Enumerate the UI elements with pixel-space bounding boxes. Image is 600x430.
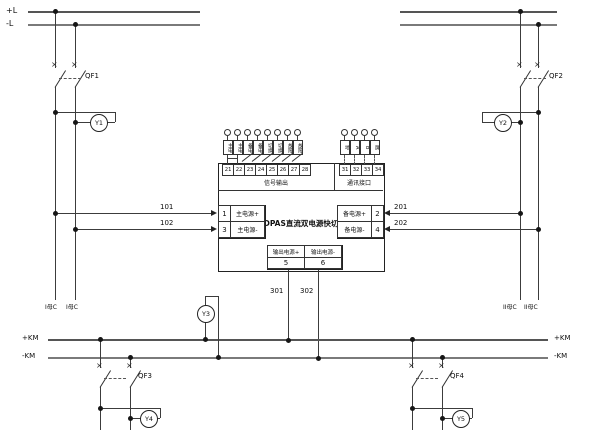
wire <box>55 112 115 113</box>
breaker-label-qf2: QF2 <box>549 72 563 81</box>
bus-line-pos-right <box>400 11 557 13</box>
breaker-contact-icon: × <box>534 61 541 69</box>
terminal-number: 34 <box>373 164 384 176</box>
module-title: DPAS直流双电源快切 <box>256 218 346 229</box>
terminal-label: 主电源+ <box>230 205 265 222</box>
terminal-circle <box>341 129 348 136</box>
junction-dot <box>73 120 78 125</box>
breaker-contact-icon: × <box>126 362 133 370</box>
terminal-circle <box>254 129 261 136</box>
signal-terminal-row: 21 22 23 24 25 26 27 28 <box>222 164 311 176</box>
indicator-y2-label: Y2 <box>499 119 507 127</box>
wire-label-302: 302 <box>300 287 313 296</box>
wire-label-102: 102 <box>160 219 173 228</box>
bus-line-neg-right <box>400 24 557 26</box>
wire <box>520 87 521 300</box>
bus-label-neg-km-right: -KM <box>554 352 567 361</box>
breaker-label-qf3: QF3 <box>138 372 152 381</box>
indicator-y3: Y3 <box>197 305 215 323</box>
junction-dot <box>536 110 541 115</box>
comm-section-label: 通讯接口 <box>336 178 382 187</box>
junction-dot <box>536 227 541 232</box>
terminal-circle <box>274 129 281 136</box>
junction-dot <box>53 110 58 115</box>
wire <box>160 408 161 418</box>
bus-line-neg-left <box>28 24 200 26</box>
wire <box>100 408 160 409</box>
indicator-y3-label: Y3 <box>202 310 210 318</box>
breaker-pole <box>100 370 111 387</box>
terminal-number: 22 <box>234 164 245 176</box>
module-strip-divider <box>218 190 383 191</box>
wire-301 <box>288 268 289 340</box>
wire-label-201: 201 <box>394 203 407 212</box>
wire <box>205 296 218 297</box>
breaker-link <box>416 378 438 379</box>
feeder-label-left-a: I母C <box>45 303 57 312</box>
wire <box>482 112 538 113</box>
wire <box>538 87 539 300</box>
breaker-label-qf1: QF1 <box>85 72 99 81</box>
indicator-y1-label: Y1 <box>95 119 103 127</box>
terminal-number: 28 <box>300 164 311 176</box>
terminal-label: 主电源- <box>230 221 265 238</box>
indicator-y5-label: Y5 <box>457 415 465 423</box>
terminal-number: 24 <box>256 164 267 176</box>
terminal-circle <box>244 129 251 136</box>
terminal-number: 32 <box>351 164 362 176</box>
junction-dot <box>53 211 58 216</box>
main-input-terminal-block: 1 主电源+ 3 主电源- <box>218 205 266 239</box>
wire-102 <box>75 229 211 230</box>
bus-label-neg-km-left: -KM <box>22 352 35 361</box>
comm-tag: B <box>360 140 370 155</box>
breaker-pole <box>55 70 66 87</box>
breaker-contact-icon: × <box>438 362 445 370</box>
junction-dot <box>410 406 415 411</box>
module-section-divider <box>334 163 335 190</box>
indicator-y4: Y4 <box>140 410 158 428</box>
wire <box>55 87 56 300</box>
junction-dot <box>410 337 415 342</box>
terminal-label: 备电源+ <box>337 205 372 222</box>
wire-302 <box>318 268 319 358</box>
feeder-label-right-a: II母C <box>503 303 517 312</box>
wire <box>482 112 483 122</box>
junction-dot <box>216 355 221 360</box>
terminal-number: 26 <box>278 164 289 176</box>
comm-tag: 屏 <box>370 140 380 155</box>
breaker-pole <box>538 70 549 87</box>
junction-dot <box>440 355 445 360</box>
breaker-pole <box>520 70 531 87</box>
wire <box>472 408 473 418</box>
indicator-y5: Y5 <box>452 410 470 428</box>
terminal-number: 27 <box>289 164 300 176</box>
comm-tag: 地 <box>340 140 350 155</box>
wire-202 <box>390 229 538 230</box>
wire <box>75 87 76 300</box>
wire-101 <box>55 213 211 214</box>
terminal-number: 23 <box>245 164 256 176</box>
signal-tag: 主电 <box>233 140 243 155</box>
indicator-y2: Y2 <box>494 114 512 132</box>
dc-dual-supply-schematic: +L -L × × QF1 Y1 I母C I母C × × QF2 Y2 II母C… <box>0 0 600 430</box>
signal-tag: 主电 <box>223 140 233 155</box>
breaker-link <box>59 78 81 79</box>
wire <box>115 112 116 122</box>
terminal-circle <box>264 129 271 136</box>
terminal-number: 31 <box>339 164 351 176</box>
terminal-circle <box>351 129 358 136</box>
wire-201 <box>390 213 520 214</box>
output-terminal-block: 输出电源+ 输出电源- 5 6 <box>267 245 343 270</box>
terminal-number: 2 <box>371 205 384 222</box>
junction-dot <box>518 120 523 125</box>
junction-dot <box>98 337 103 342</box>
feeder-label-left-b: I母C <box>66 303 78 312</box>
signal-section-label: 信号输出 <box>246 178 306 187</box>
junction-dot <box>128 416 133 421</box>
junction-dot <box>440 416 445 421</box>
junction-dot <box>98 406 103 411</box>
terminal-number: 21 <box>222 164 234 176</box>
wire-label-301: 301 <box>270 287 283 296</box>
terminal-circle <box>371 129 378 136</box>
junction-dot <box>316 356 321 361</box>
terminal-circle <box>234 129 241 136</box>
breaker-link <box>104 378 126 379</box>
wire <box>218 296 219 358</box>
terminal-label: 备电源- <box>337 221 372 238</box>
junction-dot <box>518 9 523 14</box>
breaker-contact-icon: × <box>516 61 523 69</box>
junction-dot <box>518 211 523 216</box>
bus-label-pos-km-left: +KM <box>22 334 39 343</box>
wire <box>227 158 237 159</box>
terminal-number: 5 <box>267 257 305 269</box>
bus-label-neg-left: -L <box>6 19 13 28</box>
bus-label-pos-left: +L <box>6 6 17 15</box>
bus-line-pos-km <box>48 339 548 341</box>
bus-line-neg-km <box>48 357 548 359</box>
terminal-circle <box>224 129 231 136</box>
arrowhead-icon <box>211 210 217 216</box>
terminal-number: 25 <box>267 164 278 176</box>
terminal-circle <box>294 129 301 136</box>
junction-dot <box>53 9 58 14</box>
breaker-pole <box>412 370 423 387</box>
terminal-number: 6 <box>304 257 342 269</box>
feeder-label-right-b: II母C <box>524 303 538 312</box>
arrowhead-icon <box>211 226 217 232</box>
junction-dot <box>286 338 291 343</box>
junction-dot <box>128 355 133 360</box>
terminal-number: 4 <box>371 221 384 238</box>
comm-terminal-row: 31 32 33 34 <box>339 164 384 176</box>
junction-dot <box>73 22 78 27</box>
terminal-number: 33 <box>362 164 373 176</box>
wire-label-202: 202 <box>394 219 407 228</box>
junction-dot <box>536 22 541 27</box>
junction-dot <box>203 337 208 342</box>
wire <box>412 408 472 409</box>
wire-label-101: 101 <box>160 203 173 212</box>
breaker-contact-icon: × <box>96 362 103 370</box>
breaker-contact-icon: × <box>408 362 415 370</box>
breaker-label-qf4: QF4 <box>450 372 464 381</box>
bus-label-pos-km-right: +KM <box>554 334 571 343</box>
terminal-circle <box>361 129 368 136</box>
breaker-contact-icon: × <box>71 61 78 69</box>
indicator-y1: Y1 <box>90 114 108 132</box>
breaker-link <box>524 78 546 79</box>
breaker-contact-icon: × <box>51 61 58 69</box>
terminal-circle <box>284 129 291 136</box>
indicator-y4-label: Y4 <box>145 415 153 423</box>
backup-input-terminal-block: 备电源+ 2 备电源- 4 <box>337 205 385 239</box>
comm-tag: A <box>350 140 360 155</box>
junction-dot <box>73 227 78 232</box>
